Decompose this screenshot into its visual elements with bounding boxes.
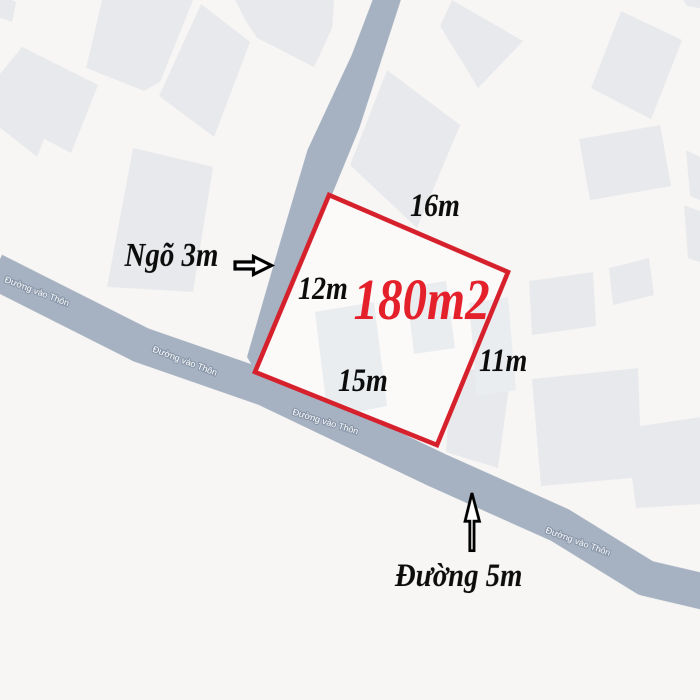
svg-text:Ngõ 3m: Ngõ 3m <box>124 236 219 274</box>
svg-text:16m: 16m <box>410 187 460 224</box>
svg-text:11m: 11m <box>479 342 527 379</box>
svg-text:Đường 5m: Đường 5m <box>394 556 522 593</box>
svg-text:15m: 15m <box>338 362 388 399</box>
svg-text:12m: 12m <box>298 270 348 307</box>
svg-text:180m2: 180m2 <box>354 267 490 332</box>
